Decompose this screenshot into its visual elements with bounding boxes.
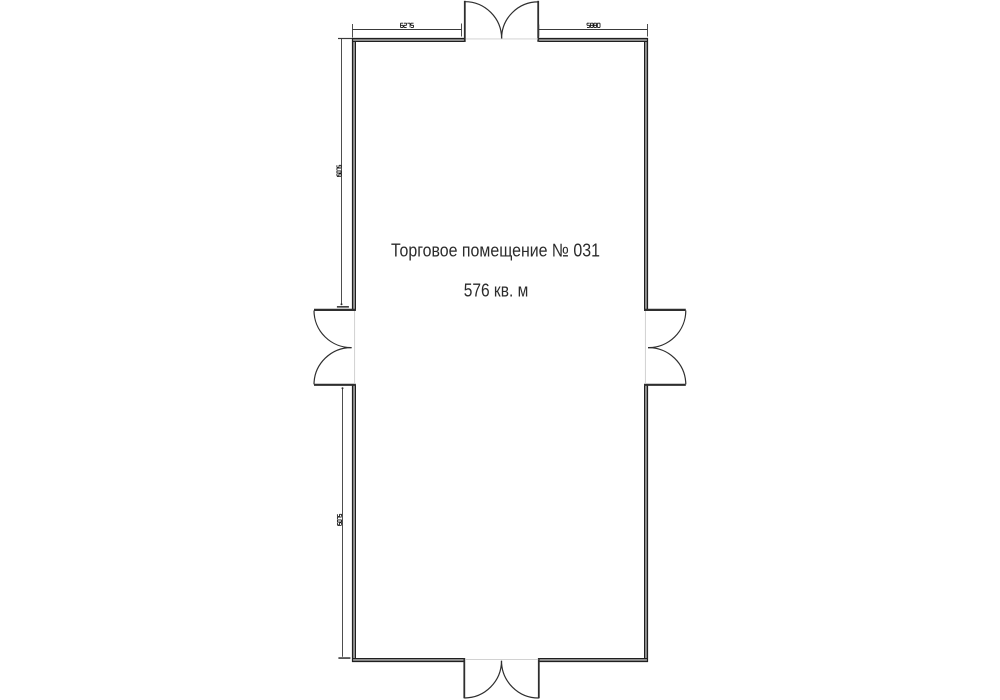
svg-text:Торговое помещение № 031: Торговое помещение № 031 bbox=[391, 240, 600, 261]
svg-text:576 кв. м: 576 кв. м bbox=[464, 281, 529, 301]
